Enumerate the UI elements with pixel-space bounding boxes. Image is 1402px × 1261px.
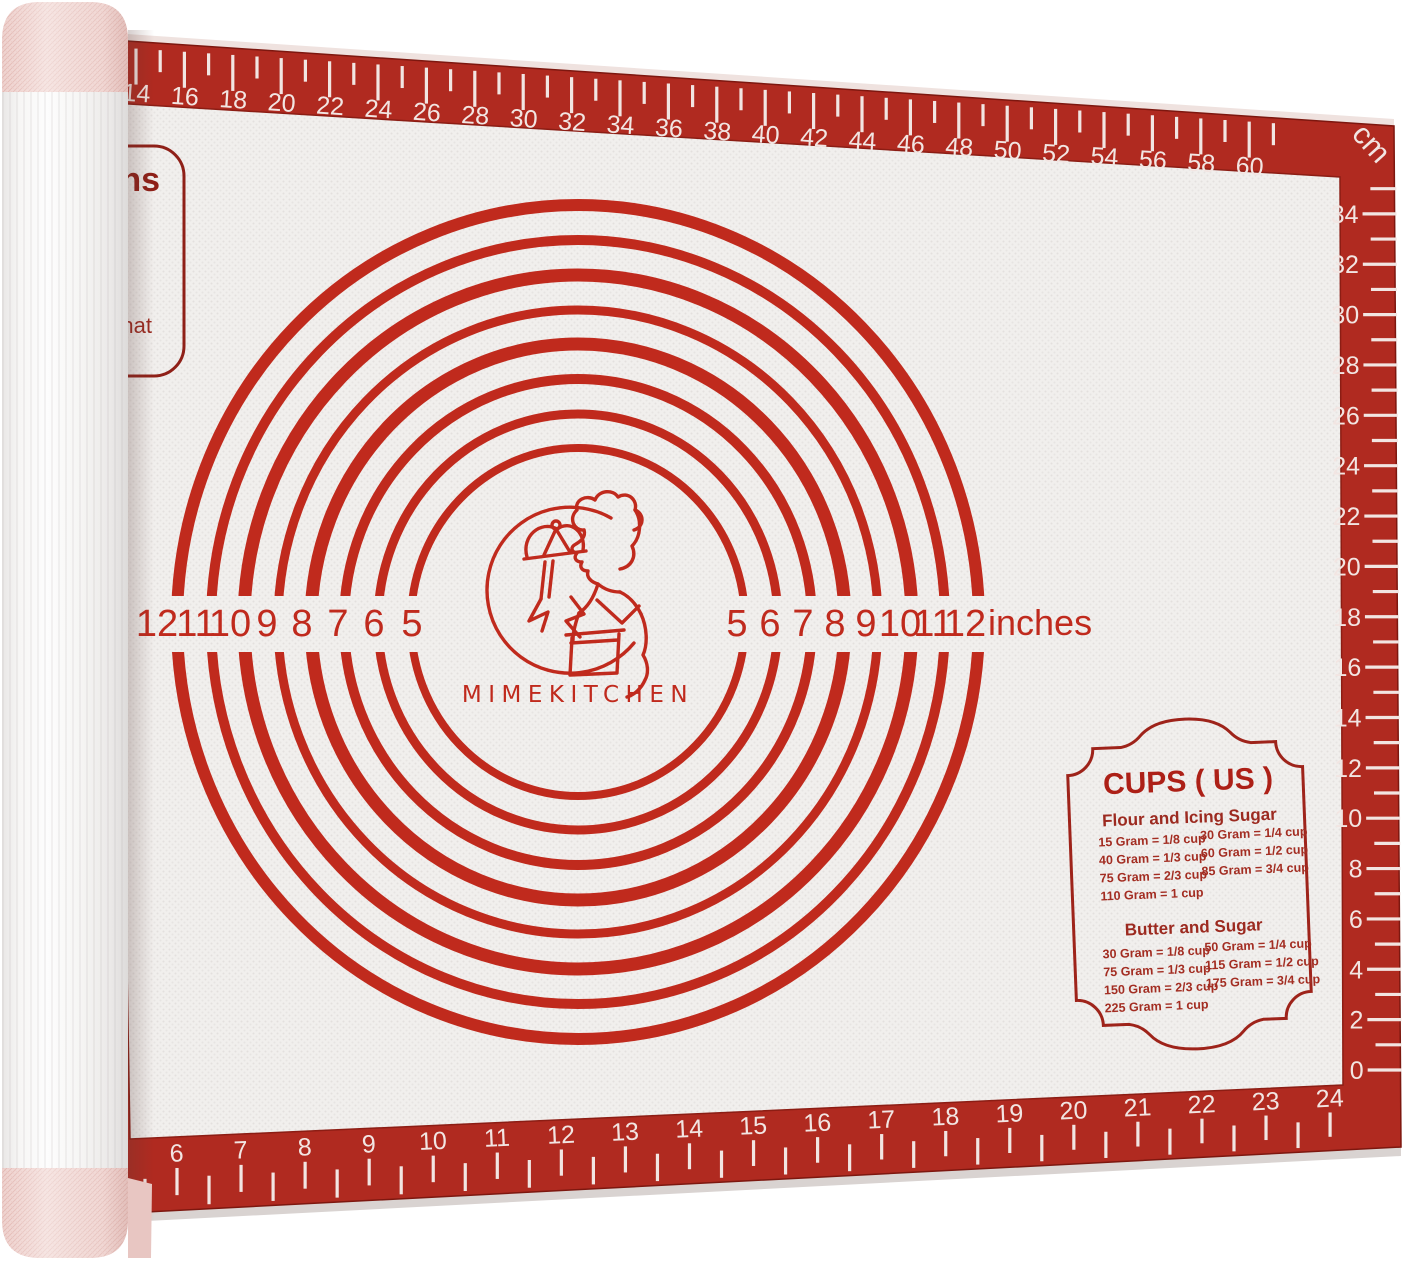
circle-label: 7 <box>327 603 348 645</box>
baking-mat: 12 11 10 9 8 7 6 5 5 6 7 8 9 10 11 12 in… <box>36 33 1402 1222</box>
ruler-label: 26 <box>1332 402 1360 430</box>
ruler-label: 14 <box>675 1115 704 1144</box>
ruler-label: 21 <box>1123 1093 1152 1122</box>
ruler-label: 0 <box>1350 1057 1364 1085</box>
circle-label: 8 <box>824 603 845 645</box>
ruler-label: 24 <box>364 95 394 125</box>
ruler-label: 16 <box>170 82 200 112</box>
ruler-label: 6 <box>1349 906 1363 934</box>
ruler-label: 20 <box>1333 553 1361 581</box>
ruler-label: 50 <box>993 136 1023 166</box>
ruler-label: 22 <box>1333 503 1361 531</box>
product-photo-baking-mat: 12 11 10 9 8 7 6 5 5 6 7 8 9 10 11 12 in… <box>0 0 1402 1261</box>
ruler-label: 40 <box>751 120 781 150</box>
ruler-label: 38 <box>703 117 733 147</box>
ruler-label: 10 <box>418 1127 447 1156</box>
roll-pink-bottom-shade <box>2 1168 128 1258</box>
ruler-label: 32 <box>1331 251 1359 279</box>
circle-label: 6 <box>363 603 384 645</box>
mat-pink-corner <box>128 1178 152 1258</box>
ruler-label: 12 <box>546 1121 575 1150</box>
ruler-label: 15 <box>739 1112 768 1141</box>
ruler-label: 20 <box>1059 1096 1088 1125</box>
baking-mat-scene: 12 11 10 9 8 7 6 5 5 6 7 8 9 10 11 12 in… <box>0 0 1402 1261</box>
ruler-label: 17 <box>867 1105 896 1134</box>
ruler-label: 34 <box>606 110 636 140</box>
ruler-label: 8 <box>1349 856 1363 884</box>
ruler-label: 58 <box>1187 149 1217 179</box>
circle-label: 8 <box>291 603 312 645</box>
ruler-label: 10 <box>1334 805 1362 833</box>
ruler-label: 19 <box>995 1099 1024 1128</box>
circle-label: 5 <box>401 603 422 645</box>
ruler-label: 2 <box>1350 1007 1364 1035</box>
ruler-label: 28 <box>1332 352 1360 380</box>
ruler-label: 14 <box>1334 704 1362 732</box>
ruler-label: 6 <box>169 1139 184 1168</box>
circle-label: 12 <box>944 603 986 645</box>
circle-label: 9 <box>855 603 876 645</box>
roll-pink-top-shade <box>2 2 128 92</box>
ruler-label: 23 <box>1251 1087 1280 1116</box>
circle-label: 6 <box>759 603 780 645</box>
ruler-label: 16 <box>803 1108 832 1137</box>
ruler-label: 18 <box>219 85 249 115</box>
ruler-label: 42 <box>799 123 829 153</box>
ruler-label: 26 <box>412 98 442 128</box>
ruler-label: 7 <box>233 1136 248 1165</box>
ruler-label: 8 <box>297 1133 312 1162</box>
ruler-label: 22 <box>1187 1090 1216 1119</box>
ruler-label: 22 <box>315 91 345 121</box>
ruler-label: 28 <box>461 101 491 131</box>
ruler-label: 13 <box>611 1118 640 1147</box>
ruler-label: 16 <box>1333 654 1361 682</box>
ruler-label: 36 <box>654 114 684 144</box>
roll-texture <box>2 2 128 1258</box>
ruler-label: 52 <box>1041 139 1071 169</box>
circle-label: 9 <box>256 603 277 645</box>
ruler-label: 30 <box>509 104 539 134</box>
roll-shadow <box>128 30 154 1220</box>
ruler-label: 34 <box>1331 201 1359 229</box>
ruler-label: 54 <box>1090 142 1120 172</box>
ruler-label: 56 <box>1138 145 1168 175</box>
ruler-label: 48 <box>945 133 975 163</box>
ruler-label: 32 <box>557 107 587 137</box>
ruler-label: 9 <box>361 1130 376 1159</box>
circle-label: 5 <box>726 603 747 645</box>
ruler-label: 24 <box>1332 453 1360 481</box>
ruler-label: 4 <box>1349 956 1363 984</box>
ruler-label: 20 <box>267 88 297 118</box>
ruler-label: 12 <box>1334 755 1362 783</box>
rolled-mat-end <box>2 2 154 1258</box>
cups-panel-title: CUPS ( US ) <box>1102 762 1273 802</box>
ruler-label: 24 <box>1315 1084 1344 1113</box>
circle-label: 10 <box>209 603 251 645</box>
ruler-label: 60 <box>1235 152 1265 182</box>
ruler-label: 18 <box>931 1102 960 1131</box>
inches-unit-label: inches <box>988 602 1092 643</box>
ruler-label: 30 <box>1331 302 1359 330</box>
brand-wordmark: MIMEKITCHEN <box>462 682 694 708</box>
ruler-label: 11 <box>483 1124 510 1153</box>
circle-label: 7 <box>792 603 813 645</box>
ruler-label: 46 <box>896 130 926 160</box>
ruler-label: 18 <box>1333 604 1361 632</box>
ruler-label: 44 <box>848 126 878 156</box>
